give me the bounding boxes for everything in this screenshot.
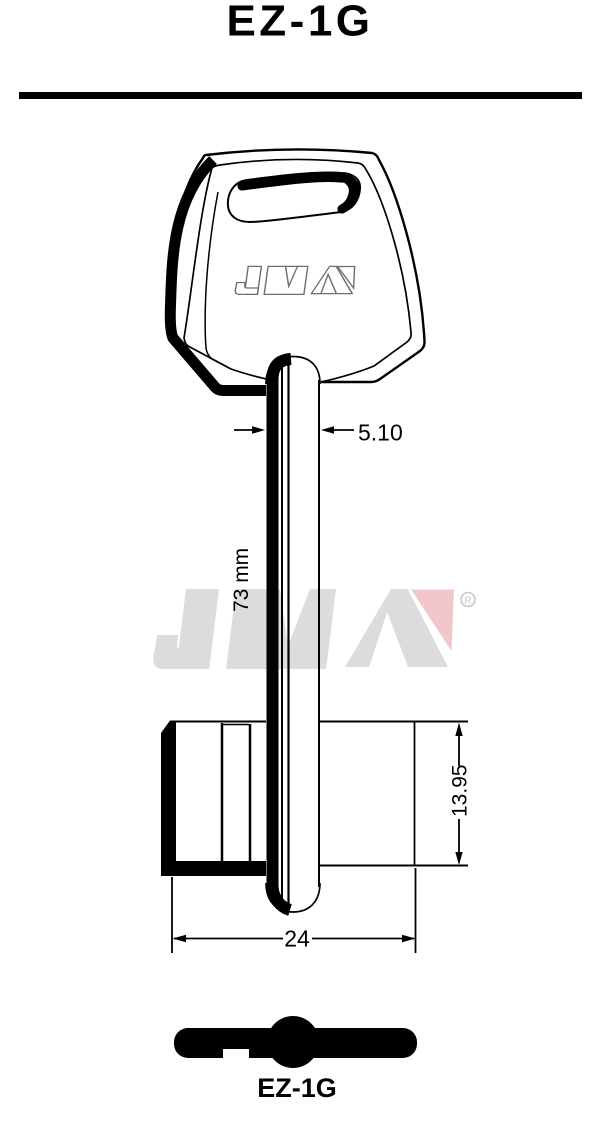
svg-text:R: R bbox=[464, 596, 471, 607]
svg-text:EZ-1G: EZ-1G bbox=[226, 0, 373, 46]
svg-text:13.95: 13.95 bbox=[449, 764, 472, 817]
svg-text:24: 24 bbox=[284, 926, 310, 952]
svg-text:EZ-1G: EZ-1G bbox=[257, 1073, 337, 1103]
svg-text:5.10: 5.10 bbox=[358, 420, 403, 446]
svg-text:73 mm: 73 mm bbox=[230, 548, 253, 612]
